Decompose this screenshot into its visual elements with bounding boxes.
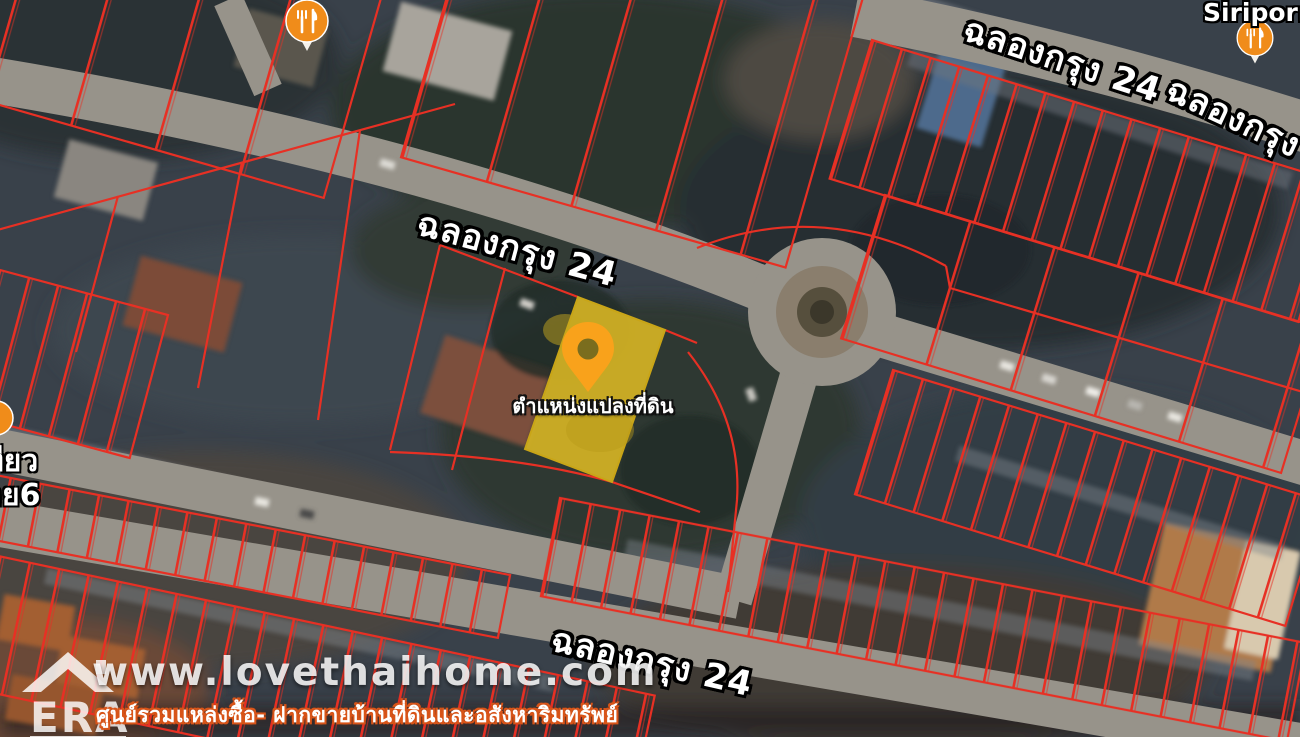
satellite-map: ERA REAL ESTATE bbox=[0, 0, 1300, 737]
partial-street-label: ทียว อย6 bbox=[0, 445, 40, 512]
watermark-tagline: ศูนย์รวมแหล่งซื้อ- ฝากขายบ้านที่ดินและอส… bbox=[96, 699, 618, 732]
land-plot-map-image: ERA REAL ESTATE ฉลองกรุง 24 ฉลองกรุง 24 … bbox=[0, 0, 1300, 737]
parcel-position-label: ตำแหน่งแปลงที่ดิน bbox=[508, 390, 678, 422]
poi-label-siriporn: Siriporn bbox=[1203, 0, 1300, 27]
partial-street-label-line1: ทียว bbox=[0, 445, 40, 479]
partial-street-label-line2: อย6 bbox=[0, 479, 40, 513]
watermark-url: www.lovethaihome.com bbox=[92, 650, 658, 695]
